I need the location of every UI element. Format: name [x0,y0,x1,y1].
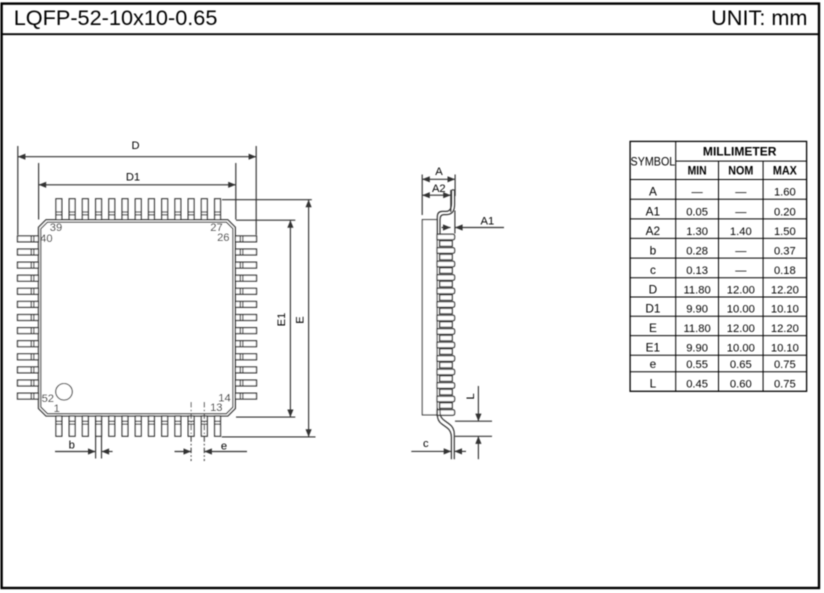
svg-text:c: c [650,263,656,277]
svg-text:LQFP-52-10x10-0.65: LQFP-52-10x10-0.65 [14,5,218,30]
svg-text:0.65: 0.65 [730,359,752,371]
svg-text:10.10: 10.10 [771,304,799,316]
svg-text:0.18: 0.18 [774,265,796,277]
svg-text:MILLIMETER: MILLIMETER [703,144,777,158]
svg-text:10.00: 10.00 [727,304,755,316]
svg-text:UNIT: mm: UNIT: mm [711,5,807,30]
svg-text:L: L [650,377,657,391]
svg-text:0.05: 0.05 [686,206,708,218]
svg-text:—: — [692,187,704,199]
svg-text:c: c [423,438,429,450]
svg-text:E: E [649,321,657,335]
svg-text:A: A [649,185,657,199]
svg-text:0.55: 0.55 [686,359,708,371]
svg-text:9.90: 9.90 [686,304,708,316]
svg-text:11.80: 11.80 [684,284,711,296]
svg-text:E1: E1 [276,313,288,327]
svg-text:0.13: 0.13 [686,265,708,277]
svg-text:D1: D1 [645,302,660,316]
svg-text:0.60: 0.60 [730,379,752,391]
svg-text:MAX: MAX [773,164,797,178]
svg-text:12.00: 12.00 [727,284,755,296]
svg-text:—: — [735,265,747,277]
svg-text:0.37: 0.37 [774,246,796,258]
svg-text:12.20: 12.20 [771,323,799,335]
svg-text:—: — [735,206,747,218]
svg-text:26: 26 [217,232,229,244]
svg-text:1: 1 [54,403,60,415]
svg-text:52: 52 [42,393,54,405]
svg-text:D: D [132,140,140,152]
svg-text:D: D [649,282,658,296]
svg-text:NOM: NOM [728,164,753,178]
svg-text:40: 40 [40,233,52,245]
svg-text:—: — [735,187,747,199]
svg-text:L: L [465,393,477,399]
svg-text:10.00: 10.00 [727,343,755,355]
svg-text:1.30: 1.30 [686,226,708,238]
svg-text:1.50: 1.50 [774,226,796,238]
svg-text:1.60: 1.60 [774,187,796,199]
svg-text:0.20: 0.20 [774,206,796,218]
svg-text:A1: A1 [481,216,495,228]
svg-text:0.75: 0.75 [774,359,796,371]
svg-text:b: b [69,439,75,451]
svg-text:e: e [221,441,227,453]
svg-text:A2: A2 [646,224,660,238]
svg-text:0.75: 0.75 [774,379,796,391]
svg-text:13: 13 [210,402,222,414]
svg-text:e: e [650,357,657,371]
svg-text:0.28: 0.28 [686,246,708,258]
svg-text:MIN: MIN [688,164,707,178]
svg-text:D1: D1 [126,171,140,183]
svg-text:10.10: 10.10 [771,343,799,355]
svg-text:E: E [294,316,306,323]
svg-text:A1: A1 [646,204,660,218]
svg-text:SYMBOL: SYMBOL [631,155,676,169]
svg-text:12.20: 12.20 [771,284,799,296]
svg-text:E1: E1 [646,341,660,355]
svg-text:A2: A2 [432,183,446,195]
svg-text:1.40: 1.40 [730,226,752,238]
svg-text:b: b [650,244,657,258]
svg-text:9.90: 9.90 [686,343,708,355]
svg-text:11.80: 11.80 [684,323,711,335]
svg-text:A: A [435,166,443,178]
svg-text:12.00: 12.00 [727,323,755,335]
svg-text:—: — [735,246,747,258]
svg-text:0.45: 0.45 [686,379,708,391]
